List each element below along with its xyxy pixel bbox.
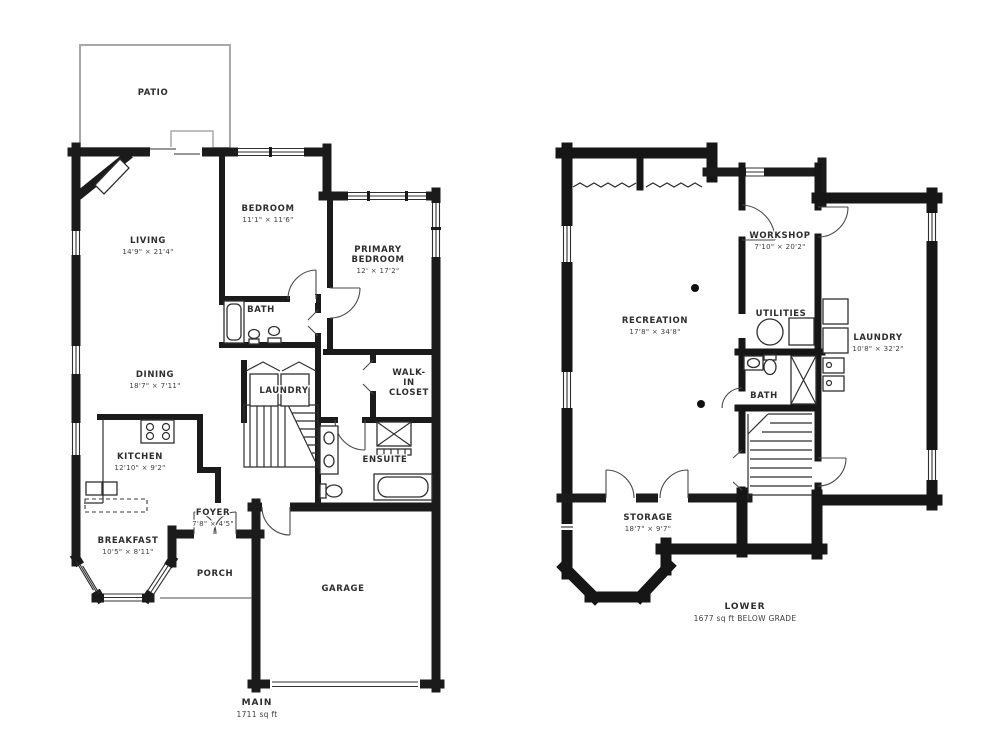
recreation-details xyxy=(573,183,705,408)
room-label-primary-1: PRIMARY xyxy=(354,245,402,255)
room-dims-storage: 18'7" × 9'7" xyxy=(625,525,671,533)
room-label-storage: STORAGE xyxy=(623,513,672,523)
room-dims-dining: 18'7" × 7'11" xyxy=(129,382,180,390)
room-label-kitchen: KITCHEN xyxy=(117,452,163,462)
lower-laundry-fixtures xyxy=(823,299,848,391)
room-label-lower-bath: BATH xyxy=(750,391,778,401)
main-laundry-fixtures xyxy=(246,362,316,406)
room-label-wic-2: IN xyxy=(403,378,414,388)
room-label-porch: PORCH xyxy=(197,569,233,579)
support-post-icon xyxy=(691,284,699,292)
room-label-utilities: UTILITIES xyxy=(756,309,807,319)
room-label-garage: GARAGE xyxy=(321,584,364,594)
room-dims-workshop: 7'10" × 20'2" xyxy=(754,243,805,251)
room-label-living: LIVING xyxy=(130,236,166,246)
room-label-patio: PATIO xyxy=(138,88,169,98)
main-stairs xyxy=(244,405,318,467)
lower-exterior-walls xyxy=(561,148,937,598)
floor-area-lower: 1677 sq ft BELOW GRADE xyxy=(694,614,797,623)
floor-title-lower: LOWER xyxy=(724,602,765,612)
room-dims-foyer: 7'8" × 4'5" xyxy=(192,520,234,528)
room-label-bath: BATH xyxy=(247,305,275,315)
room-dims-recreation: 17'8" × 34'8" xyxy=(629,328,680,336)
room-dims-living: 14'9" × 21'4" xyxy=(122,248,173,256)
room-dims-kitchen: 12'10" × 9'2" xyxy=(114,464,165,472)
lower-floor-plan: RECREATION 17'8" × 34'8" WORKSHOP 7'10" … xyxy=(561,148,939,623)
room-dims-lower-laundry: 10'8" × 32'2" xyxy=(852,345,903,353)
floorplan-canvas: PATIO LIVING 14'9" × 21'4" BEDROOM 11'1"… xyxy=(0,0,1000,750)
room-dims-breakfast: 10'5" × 8'11" xyxy=(102,548,153,556)
room-label-primary-2: BEDROOM xyxy=(352,255,405,265)
room-label-bedroom: BEDROOM xyxy=(242,204,295,214)
floorplan-page: PATIO LIVING 14'9" × 21'4" BEDROOM 11'1"… xyxy=(0,0,1000,750)
room-label-breakfast: BREAKFAST xyxy=(98,536,159,546)
room-dims-primary: 12' × 17'2" xyxy=(357,267,400,275)
room-label-dining: DINING xyxy=(136,370,174,380)
utilities-fixtures xyxy=(757,318,814,345)
room-label-laundry: LAUNDRY xyxy=(259,386,308,396)
room-label-foyer: FOYER xyxy=(196,508,230,518)
room-dims-bedroom: 11'1" × 11'6" xyxy=(242,216,293,224)
support-post-icon xyxy=(697,400,705,408)
main-floor-plan: PATIO LIVING 14'9" × 21'4" BEDROOM 11'1"… xyxy=(71,45,441,719)
room-label-ensuite: ENSUITE xyxy=(363,455,408,465)
floor-area-main: 1711 sq ft xyxy=(237,710,278,719)
room-label-wic-1: WALK- xyxy=(392,368,425,378)
lower-stairs xyxy=(748,414,812,500)
room-label-lower-laundry: LAUNDRY xyxy=(853,333,902,343)
room-label-workshop: WORKSHOP xyxy=(749,231,810,241)
room-label-wic-3: CLOSET xyxy=(389,388,429,398)
floor-title-main: MAIN xyxy=(242,698,273,708)
fireplace-icon xyxy=(78,154,130,196)
room-label-recreation: RECREATION xyxy=(622,316,688,326)
